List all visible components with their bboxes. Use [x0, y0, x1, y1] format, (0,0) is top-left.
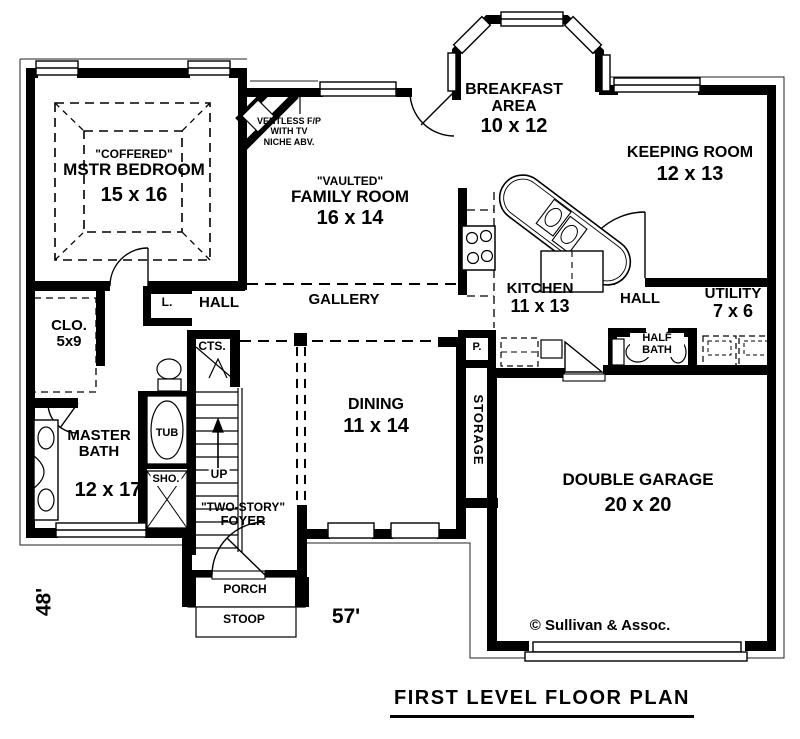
- room-label-utility: UTILITY 7 x 6: [705, 286, 762, 322]
- linen-closet-label: L.: [162, 296, 173, 309]
- room-size: 7 x 6: [705, 302, 762, 321]
- page-title: FIRST LEVEL FLOOR PLAN: [390, 688, 694, 718]
- shower-label: SHO.: [151, 474, 182, 486]
- room-name: CLO.: [51, 318, 87, 334]
- room-note: "COFFERED": [63, 148, 205, 161]
- coat-closet-label: CTS.: [198, 340, 225, 353]
- room-name: FAMILY ROOM: [291, 188, 409, 206]
- room-label-dining: DINING 11 x 14: [343, 396, 409, 438]
- half-bath-sink: [612, 339, 624, 365]
- room-name: BREAKFAST AREA: [454, 81, 574, 116]
- gallery-label: GALLERY: [308, 292, 379, 308]
- room-label-closet: CLO. 5x9: [51, 318, 87, 350]
- fireplace-note: VENTLESS F/P WITH TV NICHE ABV.: [257, 116, 321, 147]
- fireplace-note-line1: VENTLESS F/P: [257, 116, 321, 126]
- stairs-up-label: UP: [209, 468, 230, 481]
- room-label-garage: DOUBLE GARAGE 20 x 20: [562, 471, 713, 517]
- room-name: KEEPING ROOM: [627, 144, 753, 161]
- room-size: 15 x 16: [63, 185, 205, 207]
- width-dimension: 57': [332, 606, 360, 629]
- floor-plan-page: "COFFERED" MSTR BEDROOM 15 x 16 VENTLESS…: [0, 0, 800, 739]
- room-name: DOUBLE GARAGE: [562, 471, 713, 489]
- hall-right-label: HALL: [620, 291, 660, 307]
- room-name: MSTR BEDROOM: [63, 161, 205, 179]
- stoop-label: STOOP: [223, 613, 265, 626]
- room-name: UTILITY: [705, 286, 762, 302]
- double-vanity: [34, 420, 58, 520]
- room-note: "VAULTED": [291, 175, 409, 188]
- floor-plan-drawing: [0, 0, 800, 739]
- room-label-mstr-bedroom: "COFFERED" MSTR BEDROOM 15 x 16: [63, 148, 205, 207]
- garage-door: [525, 642, 747, 661]
- porch-structure: [182, 571, 309, 637]
- fireplace-note-line3: NICHE ABV.: [257, 137, 321, 147]
- room-size: 10 x 12: [454, 116, 574, 138]
- master-bath-name: MASTER BATH: [57, 428, 141, 460]
- copyright: © Sullivan & Assoc.: [530, 618, 671, 634]
- room-name: FOYER: [201, 514, 285, 528]
- pantry-label: P.: [473, 342, 482, 354]
- storage-label: STORAGE: [471, 394, 485, 465]
- master-bath-size: 12 x 17: [75, 480, 142, 502]
- room-label-keeping-room: KEEPING ROOM 12 x 13: [627, 144, 753, 186]
- room-note: "TWO-STORY": [201, 501, 285, 514]
- fireplace-note-line2: WITH TV: [257, 126, 321, 136]
- room-name: KITCHEN: [507, 281, 574, 297]
- room-name: DINING: [343, 396, 409, 413]
- room-size: 11 x 13: [507, 297, 574, 316]
- tub-label: TUB: [154, 428, 181, 440]
- room-size: 5x9: [51, 334, 87, 350]
- hall-left-label: HALL: [199, 295, 239, 311]
- half-bath-label: HALF BATH: [630, 333, 684, 357]
- room-label-breakfast-area: BREAKFAST AREA 10 x 12: [454, 81, 574, 137]
- depth-dimension: 48': [34, 588, 57, 616]
- porch-label: PORCH: [223, 583, 266, 596]
- room-size: 11 x 14: [343, 416, 409, 438]
- room-size: 20 x 20: [562, 495, 713, 517]
- room-label-kitchen: KITCHEN 11 x 13: [507, 281, 574, 317]
- room-label-family-room: "VAULTED" FAMILY ROOM 16 x 14: [291, 175, 409, 230]
- room-size: 16 x 14: [291, 208, 409, 230]
- room-size: 12 x 13: [627, 164, 753, 186]
- room-label-foyer: "TWO-STORY" FOYER: [201, 501, 285, 528]
